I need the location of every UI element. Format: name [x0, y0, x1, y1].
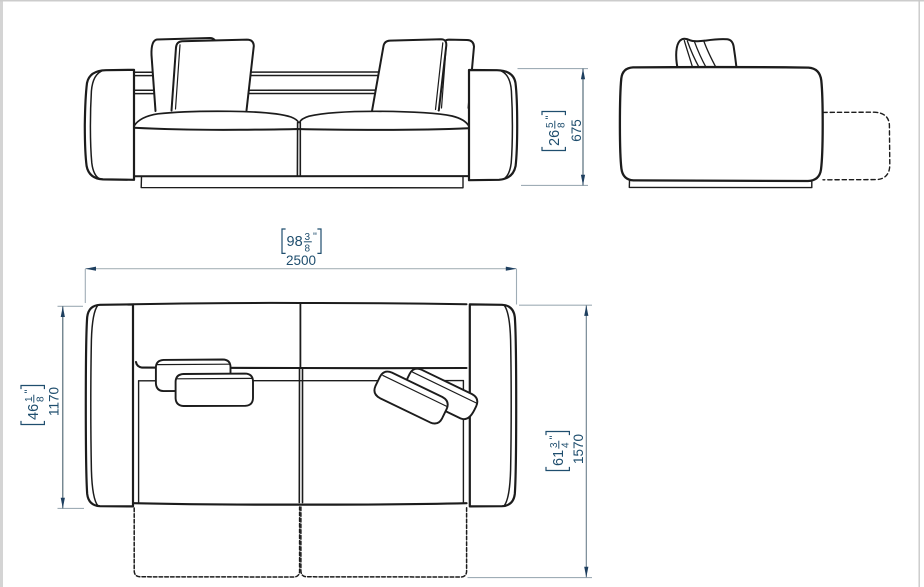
svg-text:": " — [23, 390, 35, 394]
svg-text:46: 46 — [26, 404, 42, 420]
svg-text:": " — [544, 116, 556, 120]
svg-text:61: 61 — [551, 450, 567, 466]
svg-text:8: 8 — [557, 122, 568, 128]
svg-text:26: 26 — [547, 130, 563, 146]
svg-text:": " — [313, 231, 317, 243]
svg-text:2500: 2500 — [286, 253, 316, 268]
svg-text:1570: 1570 — [571, 434, 586, 464]
svg-text:98: 98 — [287, 234, 303, 250]
svg-text:4: 4 — [561, 442, 572, 448]
svg-text:8: 8 — [36, 396, 47, 402]
svg-text:675: 675 — [569, 119, 584, 142]
svg-text:": " — [548, 436, 560, 440]
svg-text:1170: 1170 — [47, 387, 62, 416]
